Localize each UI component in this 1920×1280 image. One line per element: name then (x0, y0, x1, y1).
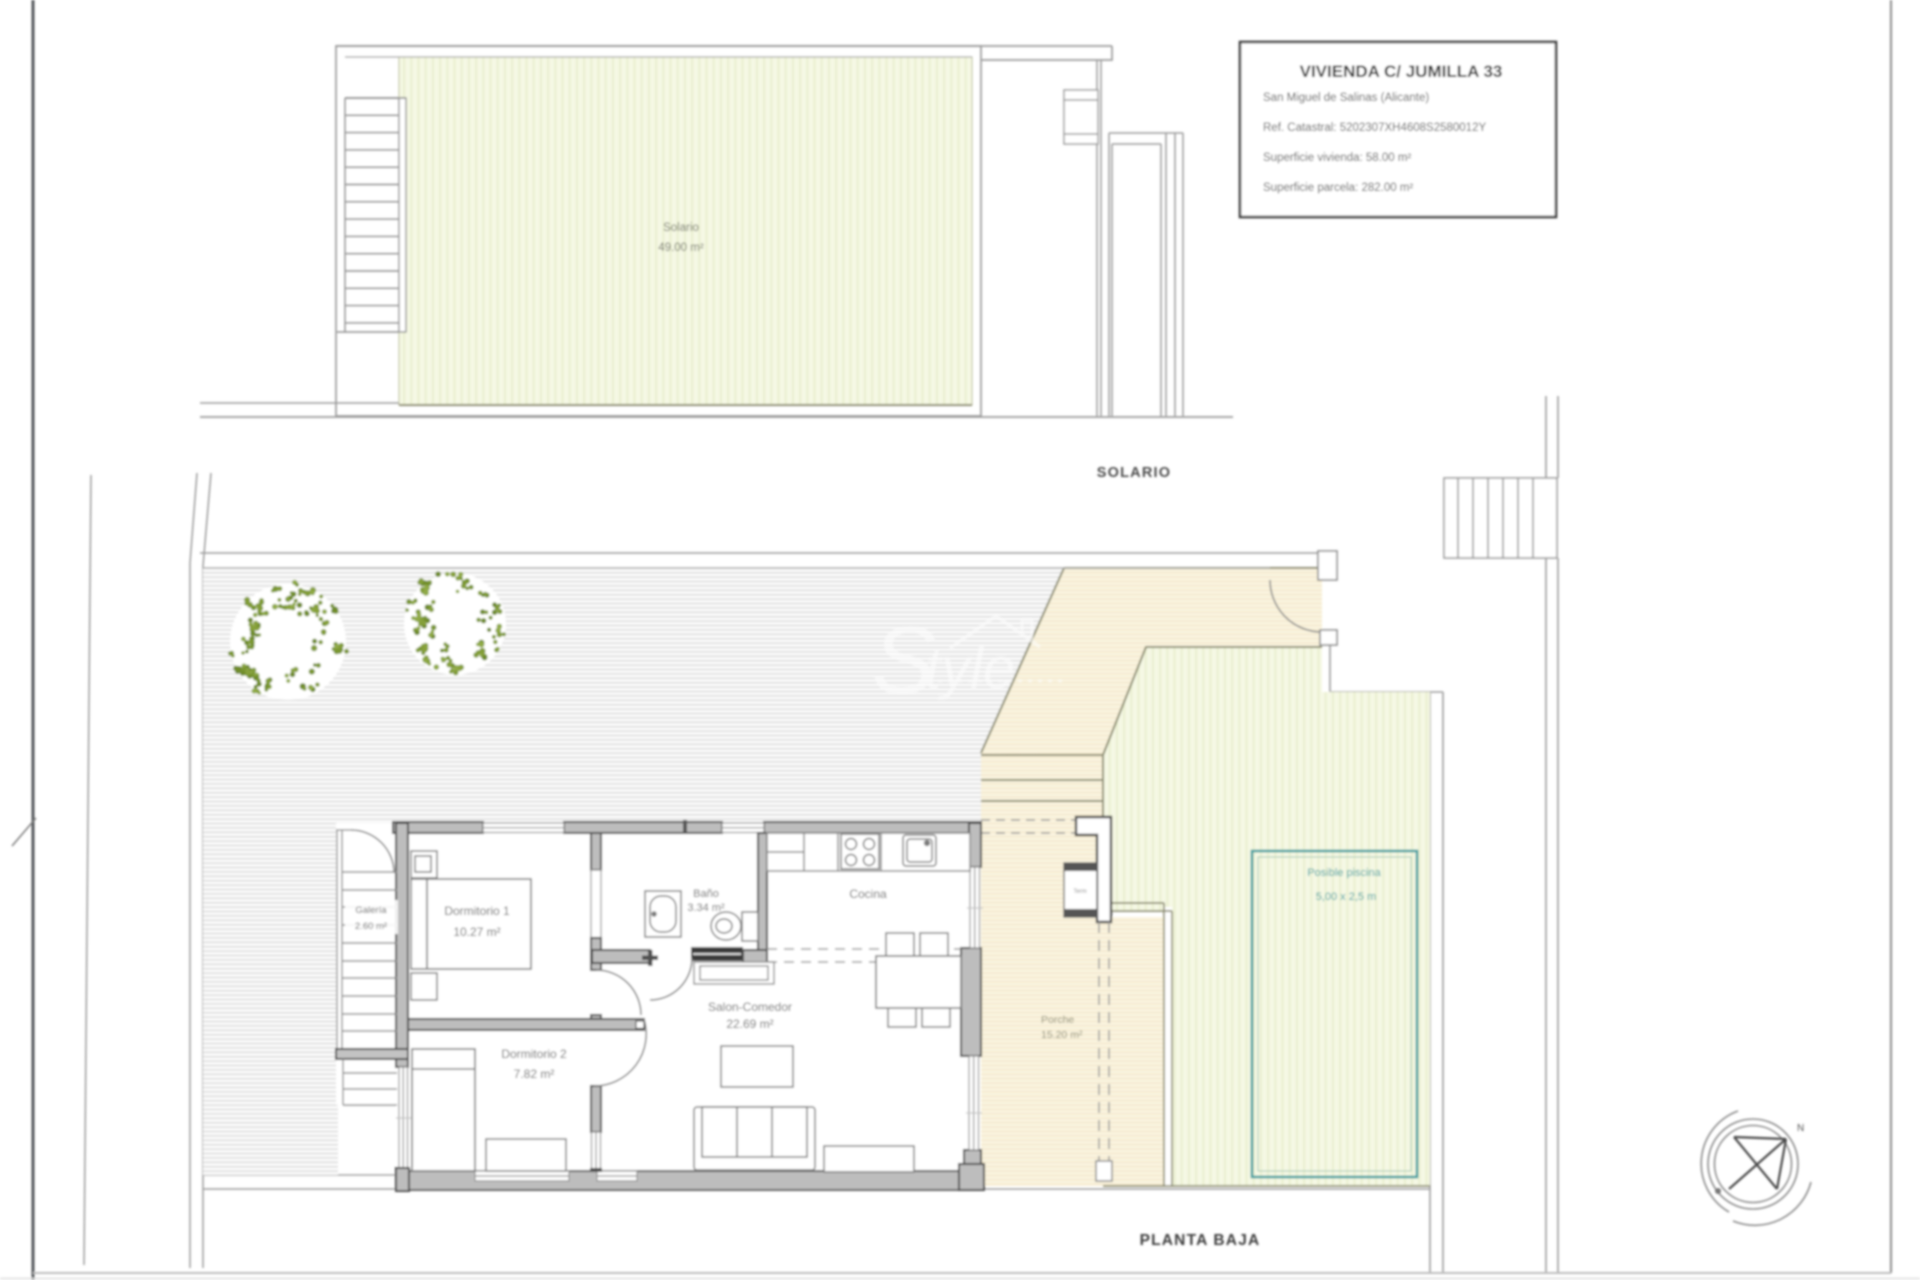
svg-text:Dormitorio 2: Dormitorio 2 (501, 1047, 567, 1061)
svg-text:N: N (1797, 1123, 1804, 1134)
svg-text:Ref. Catastral: 5202307XH4608S: Ref. Catastral: 5202307XH4608S2580012Y (1263, 122, 1486, 134)
svg-text:15.20 m²: 15.20 m² (1041, 1029, 1083, 1041)
svg-text:Baño: Baño (693, 888, 719, 900)
svg-text:Superficie vivienda: 58.00 m²: Superficie vivienda: 58.00 m² (1263, 152, 1411, 164)
svg-text:7.82 m²: 7.82 m² (514, 1067, 555, 1081)
svg-text:Salon-Comedor: Salon-Comedor (708, 1000, 792, 1014)
svg-text:Cocina: Cocina (849, 887, 887, 901)
svg-text:tyle: tyle (925, 636, 1015, 701)
svg-text:Porche: Porche (1041, 1014, 1074, 1026)
svg-text:49.00 m²: 49.00 m² (658, 242, 704, 254)
svg-text:Posible piscina: Posible piscina (1307, 867, 1381, 879)
svg-text:Solario: Solario (663, 222, 699, 234)
svg-text:PLANTA BAJA: PLANTA BAJA (1140, 1232, 1261, 1249)
svg-text:SOLARIO: SOLARIO (1097, 465, 1171, 481)
svg-text:10.27 m²: 10.27 m² (453, 925, 500, 939)
svg-text:5,00 x 2,5 m: 5,00 x 2,5 m (1316, 891, 1377, 903)
svg-text:Dormitorio 1: Dormitorio 1 (444, 904, 510, 918)
svg-text:San Miguel de Salinas (Alicant: San Miguel de Salinas (Alicante) (1263, 92, 1429, 104)
svg-text:2.60 m²: 2.60 m² (355, 921, 387, 932)
svg-text:3.34 m²: 3.34 m² (687, 902, 725, 914)
svg-text:Galería: Galería (355, 905, 387, 916)
svg-text:VIVIENDA C/ JUMILLA 33: VIVIENDA C/ JUMILLA 33 (1300, 62, 1503, 81)
svg-text:22.69 m²: 22.69 m² (726, 1017, 773, 1031)
svg-text:Term: Term (1073, 889, 1086, 895)
svg-text:Superficie parcela: 282.00 m²: Superficie parcela: 282.00 m² (1263, 182, 1413, 194)
